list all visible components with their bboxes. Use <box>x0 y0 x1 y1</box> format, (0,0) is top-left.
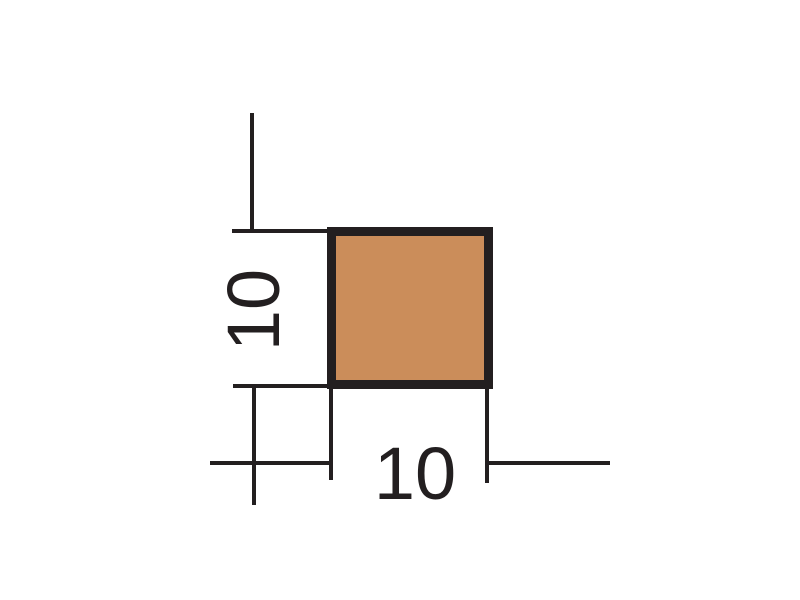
extension-line-square-left-edge <box>329 387 333 480</box>
width-dimension-label: 10 <box>374 437 456 511</box>
width-dimension-line-left-segment <box>210 461 333 465</box>
extension-line-square-right-edge <box>485 387 489 483</box>
profile-square <box>327 227 493 389</box>
width-dimension-line-right-segment <box>485 461 610 465</box>
extension-line-top-vertical <box>250 113 254 233</box>
dimension-diagram: 10 10 <box>0 0 800 600</box>
extension-line-left-vertical <box>252 384 256 505</box>
tick-line-bottom-edge <box>233 384 331 388</box>
height-dimension-label: 10 <box>217 269 291 351</box>
tick-line-top-edge <box>232 229 331 233</box>
